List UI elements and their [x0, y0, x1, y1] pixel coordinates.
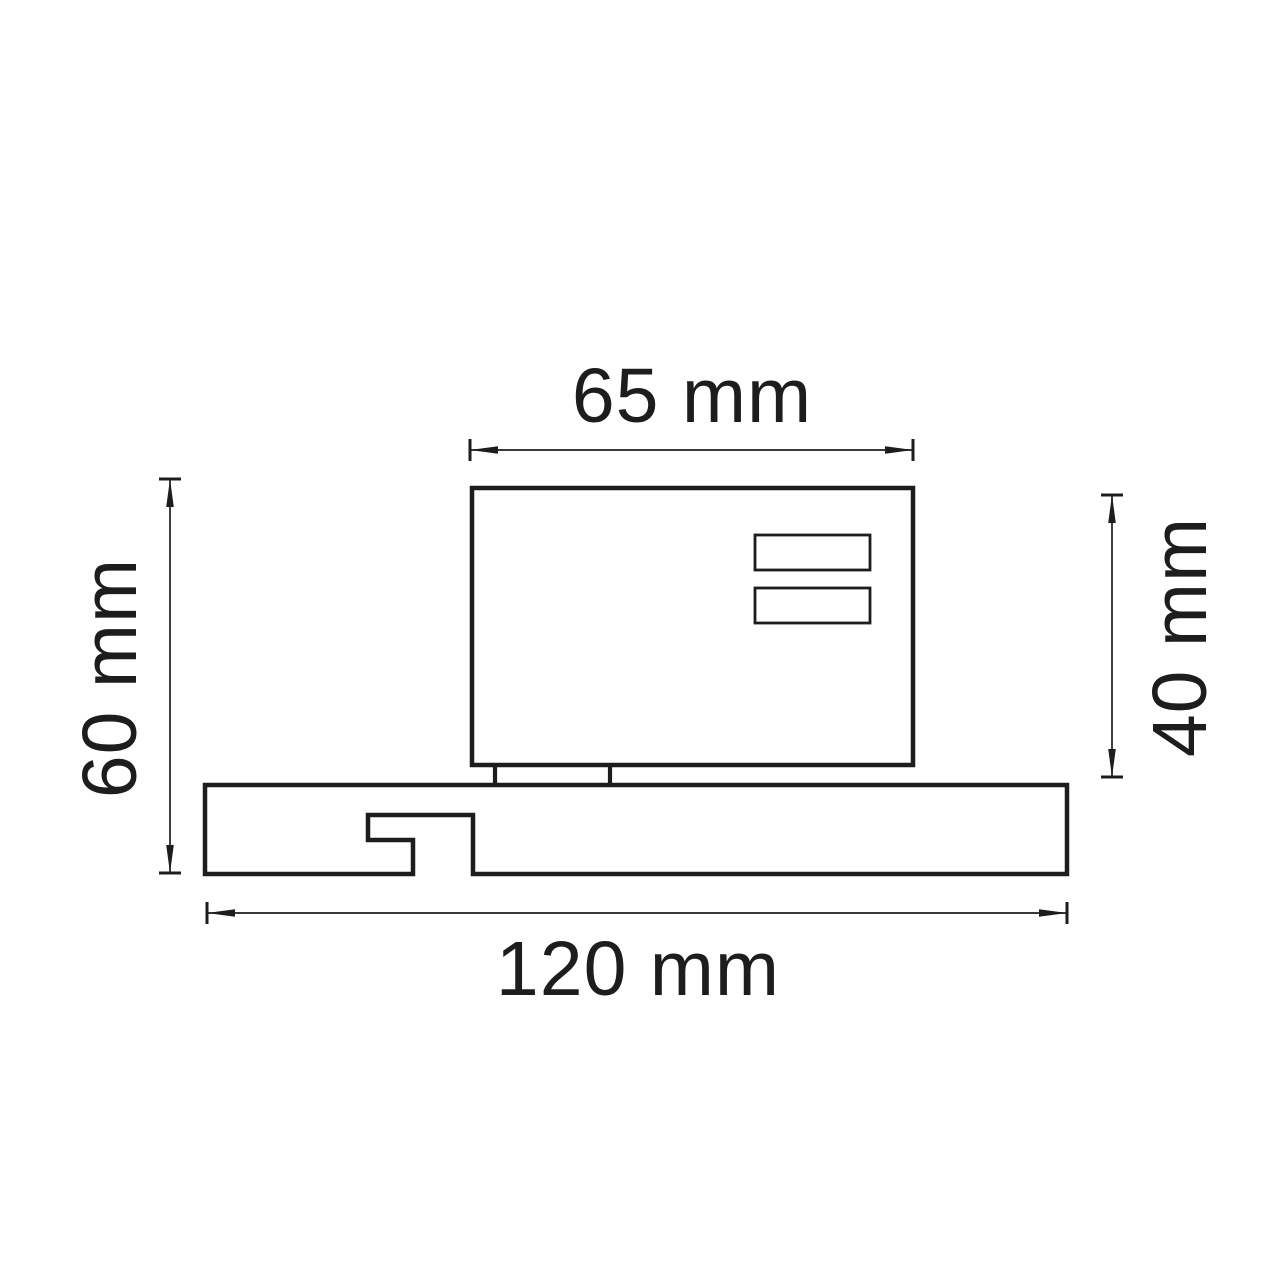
dimension-top-arrow-left — [470, 446, 498, 454]
dimension-left: 60 mm — [67, 479, 181, 873]
dimension-bottom-arrow-right — [1039, 909, 1067, 917]
dimension-top-arrow-right — [885, 446, 913, 454]
dimension-drawing-svg: 65 mm 120 mm 60 mm 40 mm — [0, 0, 1280, 1280]
dimension-top-label: 65 mm — [572, 353, 812, 439]
dimension-left-arrow-top — [166, 479, 174, 507]
dimension-right-arrow-top — [1108, 495, 1116, 523]
body-slot-top — [755, 535, 870, 570]
dimension-right-label: 40 mm — [1137, 517, 1223, 757]
dimension-bottom-label: 120 mm — [496, 926, 780, 1012]
dimension-bottom-arrow-left — [207, 909, 235, 917]
technical-drawing-canvas: 65 mm 120 mm 60 mm 40 mm — [0, 0, 1280, 1280]
part-outline-group — [205, 488, 1067, 874]
base-profile — [205, 785, 1067, 874]
dimension-bottom: 120 mm — [207, 902, 1067, 1012]
dimension-top: 65 mm — [470, 353, 913, 461]
body-slot-bottom — [755, 588, 870, 623]
dimension-right: 40 mm — [1101, 495, 1223, 777]
body-box — [472, 488, 913, 765]
dimension-left-arrow-bottom — [166, 845, 174, 873]
dimension-right-arrow-bottom — [1108, 749, 1116, 777]
dimension-left-label: 60 mm — [67, 558, 153, 798]
